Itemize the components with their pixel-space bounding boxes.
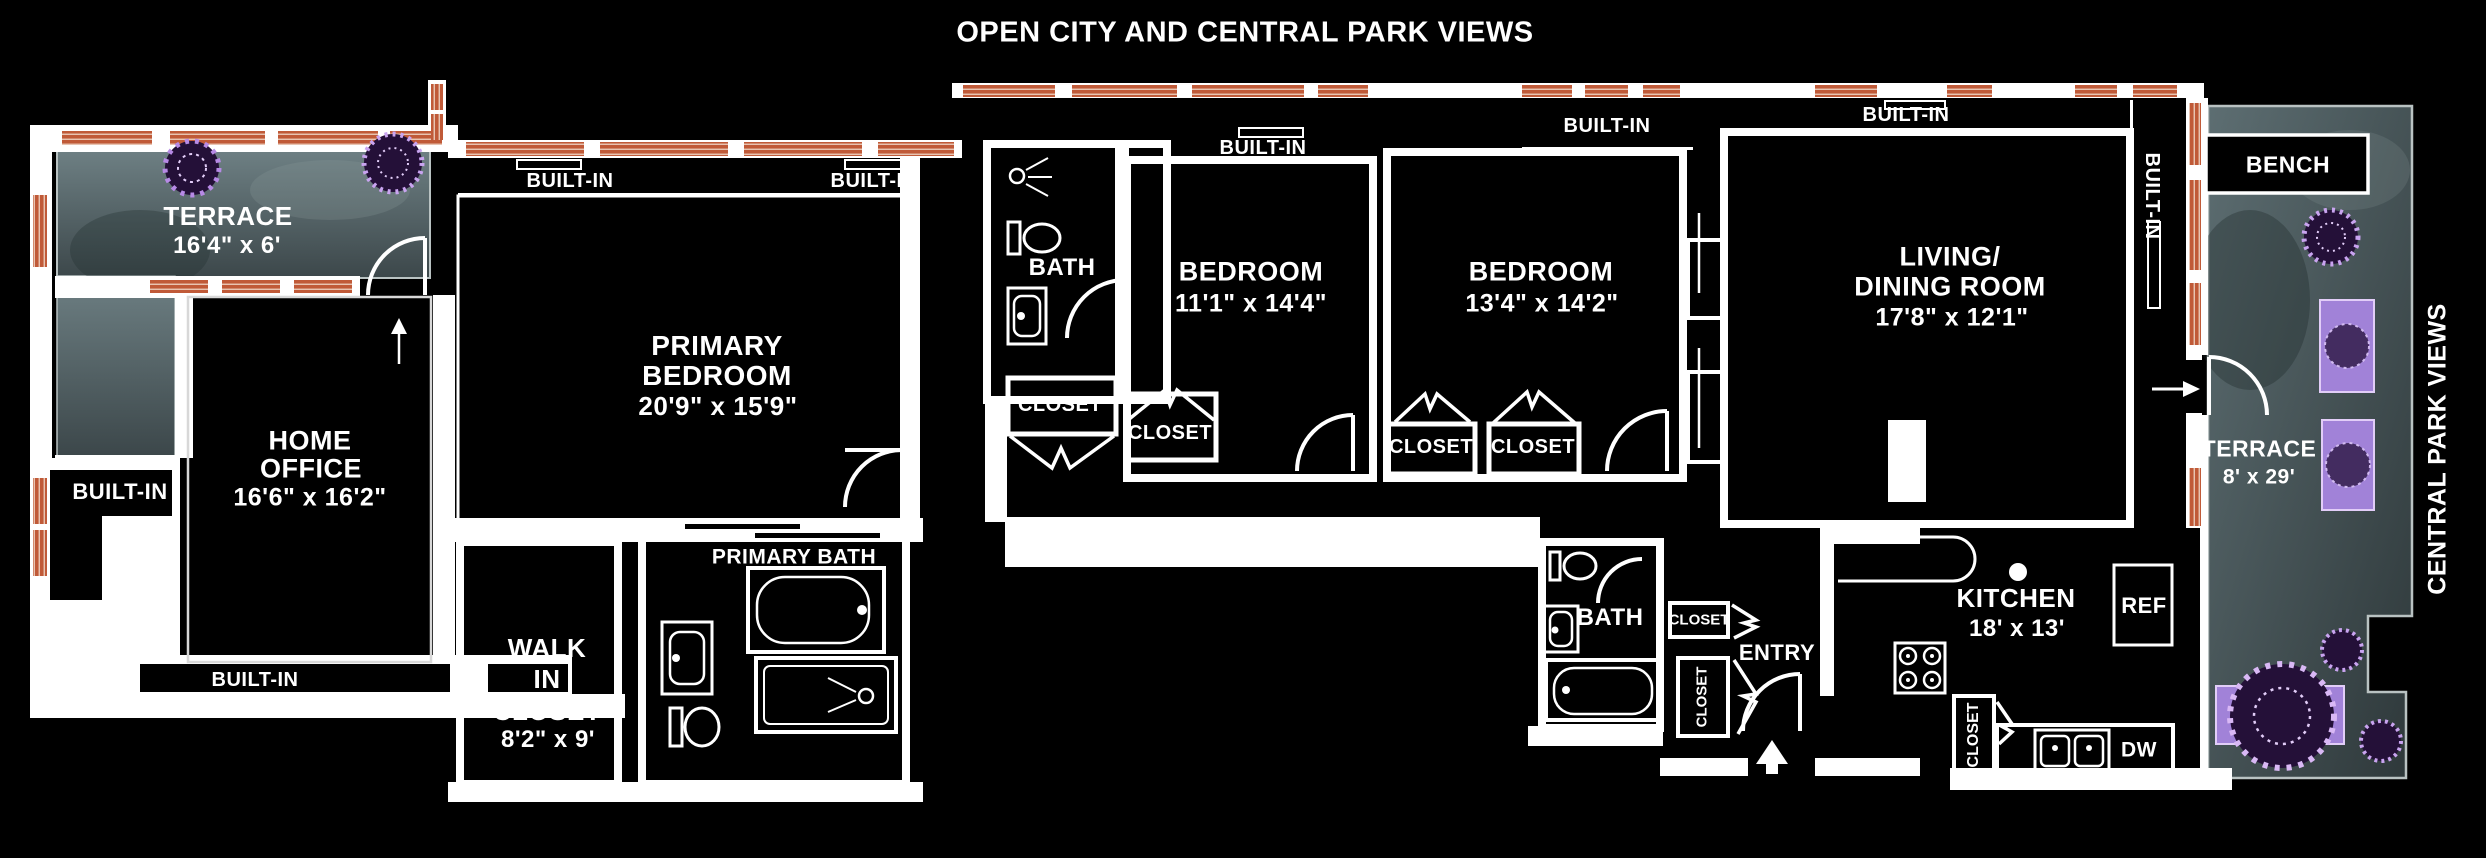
toilet-tank [1008,222,1020,254]
page-title: OPEN CITY AND CENTRAL PARK VIEWS [956,19,1533,48]
walk-in-closet-dims: 8'2" x 9' [501,728,595,752]
plant-icon [2322,630,2362,670]
shower-drain [859,689,873,703]
closet-label: CLOSET [1491,437,1575,457]
hall-bath-name: BATH [1029,256,1096,280]
terrace-direction-arrow [391,318,407,364]
built-in-label: BUILT-IN [212,670,299,690]
built-in-label: BUILT-IN [1863,105,1950,125]
second-bath-fixtures [1544,552,1660,720]
plant-icon [2304,210,2358,264]
toilet-tank [670,708,682,746]
toilet-bowl [685,708,719,746]
home-office-dims: 16'6" x 16'2" [233,486,386,511]
bedroom-1-name: BEDROOM [1179,259,1324,286]
central-park-views-label: CENTRAL PARK VIEWS [2426,303,2451,594]
walk-in-closet-name-3: CLOSET [493,698,601,724]
primary-bedroom-dims: 20'9" x 15'9" [638,393,797,419]
primary-bath-name: PRIMARY BATH [712,547,876,568]
bench-label: BENCH [2246,154,2330,177]
living-terrace-arrow [2152,381,2200,397]
closet-label: CLOSET [1018,395,1102,415]
entry-arrow [1756,740,1788,774]
toilet-bowl [1024,224,1060,252]
kitchen-name: KITCHEN [1956,585,2075,611]
primary-bath-fixtures [662,568,896,746]
terrace-right-name: TERRACE [2202,438,2317,461]
primary-bedroom-name-2: BEDROOM [642,362,792,390]
bedroom-1-dims: 11'1" x 14'4" [1175,292,1327,317]
shower-head-icon [1010,169,1024,183]
shower [756,658,896,732]
floor-plan-linework [0,0,2486,858]
built-in-label: BUILT-IN [1220,138,1307,158]
plant-icon [2361,721,2401,761]
living-dining-name-2: DINING ROOM [1854,274,2046,301]
wall-niches [1688,213,1724,462]
floor-plan: OPEN CITY AND CENTRAL PARK VIEWS TERRACE… [0,0,2486,858]
tub-faucet [857,605,867,615]
bedroom-2-name: BEDROOM [1469,259,1614,286]
toilet-tank [1550,552,1560,580]
entry-label: ENTRY [1739,642,1815,664]
built-in-label: BUILT-IN [72,481,167,503]
kitchen-island [1888,420,1926,502]
light-fixture [2009,563,2027,581]
built-in-label: BUILT-IN [527,171,614,191]
plant-icon [364,134,422,192]
kitchen-dims: 18' x 13' [1969,617,2065,641]
built-in-label: BUILT-IN [831,171,918,191]
built-in-label: BUILT-IN [2142,153,2162,240]
terrace-top-left-name: TERRACE [163,203,292,229]
large-plant-icon [2230,664,2334,768]
closet-label: CLOSET [1695,667,1710,728]
dishwasher-label: DW [2121,740,2157,761]
closet-label: CLOSET [1389,437,1473,457]
refrigerator-label: REF [2121,595,2167,617]
living-dining-dims: 17'8" x 12'1" [1875,306,2028,331]
terrace-top-left-dims: 16'4" x 6' [173,234,281,258]
living-dining-name-1: LIVING/ [1899,244,2000,271]
walk-in-closet-name-1: WALK [508,635,587,661]
built-in-label: BUILT-IN [1564,116,1651,136]
plant-icon [165,141,219,195]
primary-bedroom-name-1: PRIMARY [651,332,783,360]
terrace-top-left-floor [57,150,430,456]
home-office-name-1: HOME [269,428,352,455]
home-office-name-2: OFFICE [260,456,362,483]
closet-label: CLOSET [1128,423,1212,443]
toilet-bowl [1564,553,1596,579]
second-bath-name: BATH [1577,606,1644,630]
bedroom-2-dims: 13'4" x 14'2" [1465,292,1618,317]
hall-bath-fixtures [1008,158,1060,344]
walk-in-closet-name-2: IN [534,666,561,692]
closet-label: CLOSET [1669,613,1730,628]
terrace-right-dims: 8' x 29' [2223,467,2295,488]
closet-label: CLOSET [1966,703,1982,768]
